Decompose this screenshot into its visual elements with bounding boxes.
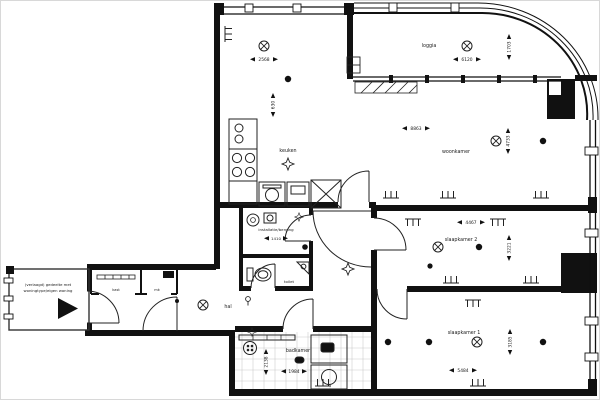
radiator-icon [523,276,539,283]
label-hal: hal [224,304,231,310]
ceiling-lights [198,41,501,347]
dim-slaapkamer1-depth: 3185 [508,336,514,347]
dim-slaapkamer2-width: 4467 [465,220,476,226]
dim-loggia-depth: 1703 [507,41,513,52]
doorbell-icon [246,297,251,306]
dim-slaapkamer1-width: 5484 [457,368,468,374]
galerij-note-line1: (verlaagd) gedeelte met [25,282,72,287]
loggia-grille [355,82,417,93]
light-icon [198,300,208,310]
radiator-icon [533,191,549,198]
light-icon [433,242,443,252]
dim-berging-width: 1410 [271,236,281,241]
radiator-icon [315,379,331,386]
galerij-note-line2: woningtype/eigen woning [24,288,74,293]
floorplan-page: loggia woonkamer keuken installatie/berg… [0,0,600,400]
radiator-icon [443,276,459,283]
label-badkamer: badkamer [286,348,310,354]
dim-woonkamer-width: 8863 [410,126,421,132]
toilet-fixtures [247,262,309,281]
label-woonkamer: woonkamer [442,149,470,155]
light-icon [462,41,472,51]
dim-woonkamer-depth: 4733 [506,135,512,146]
berging-fixtures [247,213,276,226]
meter-panel [163,271,174,278]
label-slaapkamer2: slaapkamer 2 [445,237,478,243]
radiator-icon [440,191,456,198]
dim-slaapkamer2-depth: 3221 [507,242,513,253]
radiator-icon [383,191,399,198]
doors [87,171,407,331]
kitchen-counter [229,119,341,208]
label-slaapkamer1: slaapkamer 1 [448,330,481,336]
radiator-icon [465,300,481,307]
dim-nook-depth: 630 [271,101,277,110]
dim-nook-width: 2568 [258,57,269,63]
radiator-icon [225,26,232,42]
label-kast: kast [112,288,120,292]
label-meterkast: mk [154,288,161,292]
entrance-arrow [58,298,78,319]
dim-badkamer-depth: 2138 [264,356,270,367]
light-icon [491,136,501,146]
radiator-icon [405,219,421,226]
radiator-icon [490,219,506,226]
label-loggia: loggia [422,43,437,49]
floorplan-drawing: loggia woonkamer keuken installatie/berg… [1,1,600,400]
chandelier-icon [282,158,294,170]
label-toilet: toilet [284,279,294,284]
label-berging: installatie/berging [258,227,294,232]
light-icon [472,337,482,347]
dim-loggia-width: 6120 [461,57,472,63]
light-icon [259,41,269,51]
galerij [4,266,89,330]
radiator-icon [470,379,486,386]
chandelier-icon [342,263,354,275]
coat-rail [97,275,135,279]
label-keuken: keuken [279,148,296,154]
loggia-column-notch [549,81,561,95]
dim-badkamer-width: 1984 [288,369,299,375]
